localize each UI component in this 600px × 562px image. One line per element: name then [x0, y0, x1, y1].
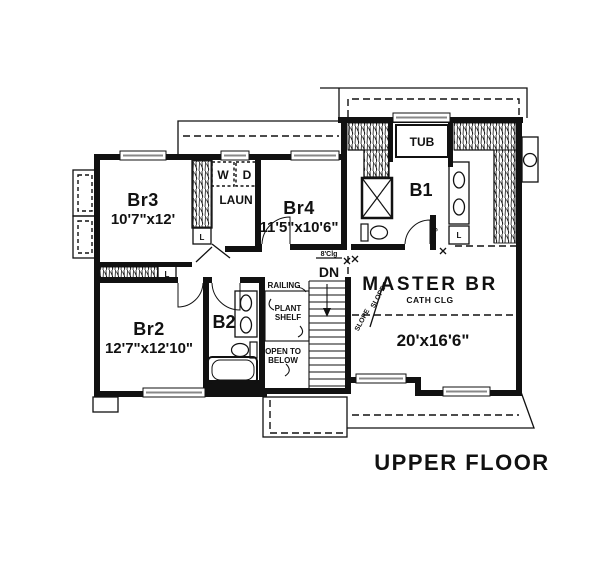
stairs-down-label: DN	[319, 264, 339, 280]
room-label-b2: B2	[212, 312, 235, 332]
open-below-label-1: OPEN TO	[265, 347, 301, 356]
master-ceiling-label: CATH CLG	[406, 295, 453, 305]
b2-vanity	[235, 291, 257, 337]
room-label-b1: B1	[409, 180, 432, 200]
room-label-br4: Br4	[283, 198, 315, 218]
ceiling-height-b1: 8'Clg	[431, 228, 438, 245]
railing-label: RAILING	[268, 281, 301, 290]
slope-label-lower: SLOPE	[354, 308, 371, 333]
plan-title: UPPER FLOOR	[374, 450, 549, 475]
room-label-laun: LAUN	[219, 193, 252, 207]
dryer-label: D	[243, 168, 252, 182]
b2-bathtub	[208, 357, 257, 383]
floor-plan-canvas: Br3 10'7"x12' LAUN W D Br4 11'5"x10'6" T…	[0, 0, 600, 557]
room-label-br2: Br2	[133, 319, 165, 339]
room-dims-master: 20'x16'6"	[397, 331, 470, 350]
b2-toilet	[232, 342, 258, 358]
floor-plan-page: Br3 10'7"x12' LAUN W D Br4 11'5"x10'6" T…	[0, 0, 600, 557]
closet-label-b1: L	[457, 231, 462, 240]
room-dims-br3: 10'7"x12'	[111, 211, 175, 228]
open-below-label-2: BELOW	[268, 356, 298, 365]
ceiling-height-hall: 8'Clg	[321, 251, 338, 258]
plant-shelf-label-2: SHELF	[275, 313, 301, 322]
room-dims-br2: 12'7"x12'10"	[105, 340, 193, 357]
room-label-br3: Br3	[127, 190, 159, 210]
plant-shelf-label-1: PLANT	[275, 304, 302, 313]
b1-toilet	[361, 224, 388, 241]
staircase	[265, 281, 345, 388]
closet-label-br2: L	[165, 270, 170, 279]
b1-shower	[362, 178, 392, 218]
closet-label-linen: L	[200, 233, 205, 242]
tub-label: TUB	[410, 135, 435, 149]
washer-label: W	[217, 168, 229, 182]
room-dims-br4: 11'5"x10'6"	[260, 219, 339, 236]
